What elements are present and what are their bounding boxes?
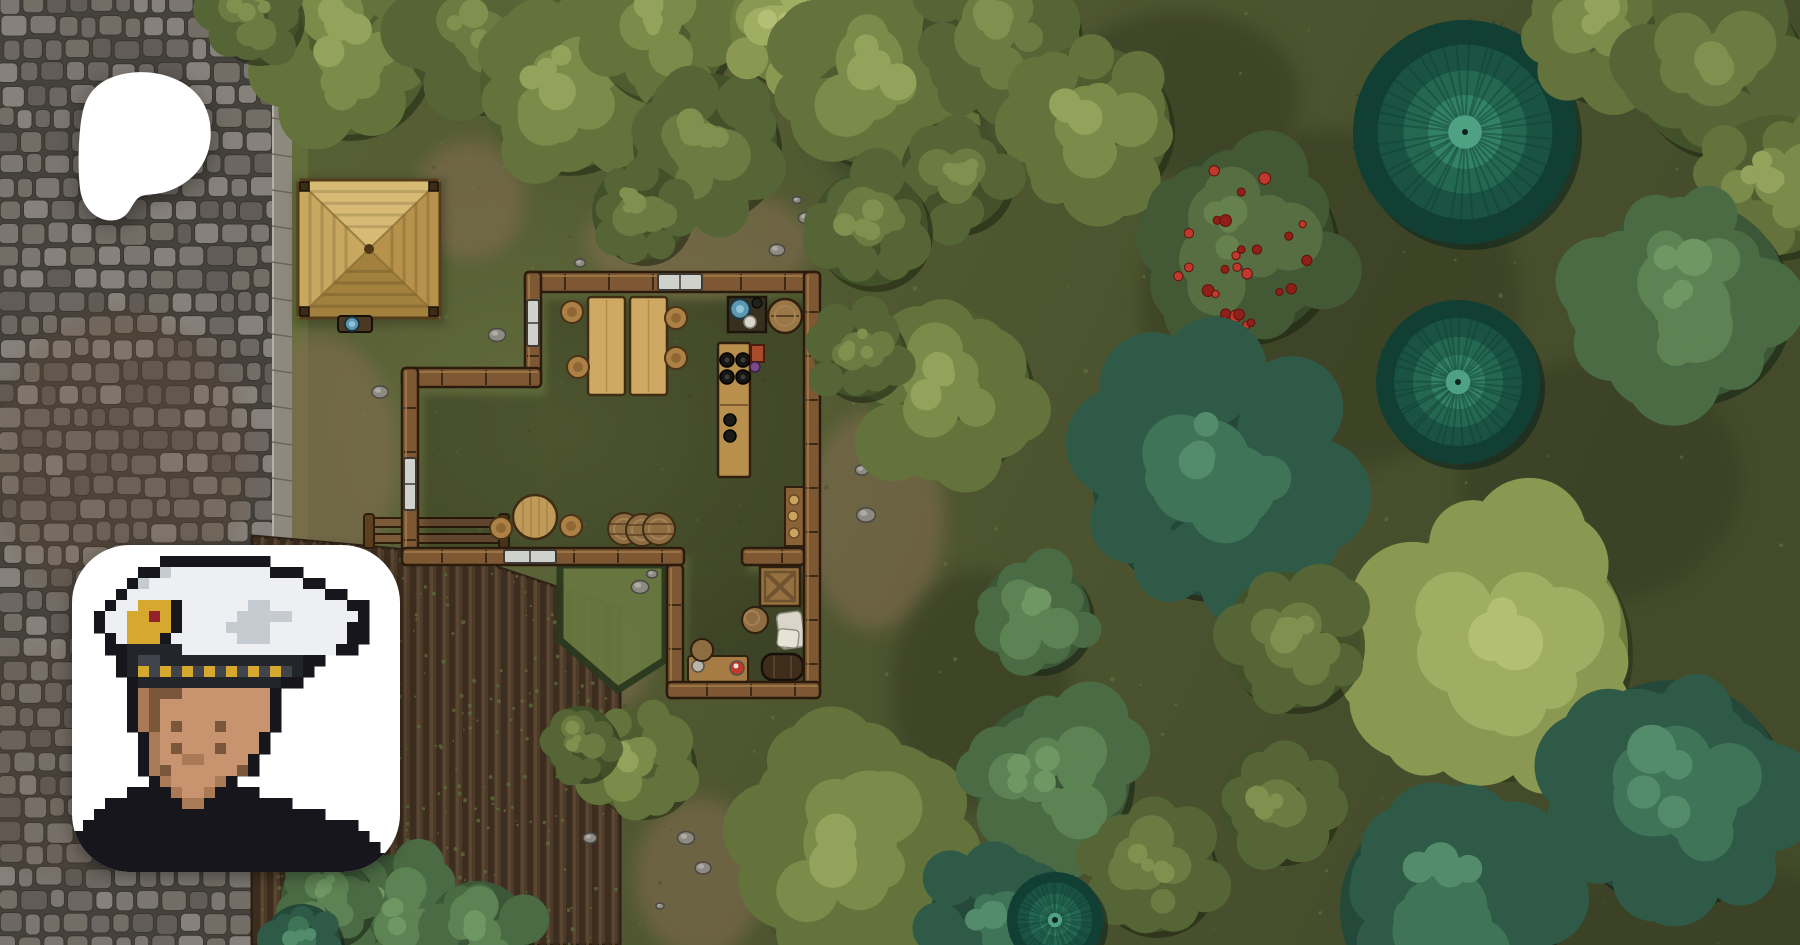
cobblestone	[186, 62, 210, 81]
creator-avatar[interactable]	[72, 545, 403, 876]
avatar-pixel	[138, 710, 150, 722]
cobblestone	[47, 269, 72, 288]
crop-sprout	[525, 669, 528, 672]
avatar-pixel	[105, 820, 117, 832]
red-berry	[1237, 188, 1245, 196]
avatar-pixel	[160, 721, 172, 733]
avatar-pixel	[215, 853, 227, 865]
canopy-highlight	[857, 328, 868, 339]
avatar-pixel	[237, 710, 249, 722]
avatar-pixel	[259, 622, 271, 634]
cobblestone	[67, 936, 88, 945]
crop-sprout	[525, 737, 529, 741]
avatar-pixel	[226, 765, 238, 777]
avatar-pixel	[149, 688, 161, 700]
avatar-pixel	[303, 589, 315, 601]
avatar-pixel	[248, 611, 260, 623]
avatar-pixel	[281, 820, 293, 832]
avatar-pixel	[226, 589, 238, 601]
canopy-highlight	[1423, 842, 1459, 878]
avatar-pixel	[182, 622, 194, 634]
avatar-pixel	[314, 644, 326, 656]
ridge	[534, 520, 537, 945]
cobblestone	[0, 340, 25, 359]
crop-sprout	[472, 679, 476, 683]
avatar-pixel	[226, 611, 238, 623]
avatar-pixel	[270, 721, 282, 733]
cobblestone	[129, 293, 145, 314]
cobblestone	[150, 270, 173, 289]
cobblestone	[23, 0, 44, 13]
cobblestone	[236, 247, 257, 267]
avatar-pixel	[347, 820, 359, 832]
canopy-highlight	[868, 50, 891, 73]
avatar-pixel	[215, 743, 227, 755]
grass-speck	[1308, 29, 1310, 31]
plate	[744, 316, 756, 328]
grass-speck	[1067, 669, 1071, 673]
avatar-pixel	[248, 787, 260, 799]
cobblestone	[215, 85, 235, 104]
cobblestone	[25, 914, 40, 935]
avatar-pixel	[270, 666, 282, 678]
avatar-pixel	[226, 831, 238, 843]
avatar-pixel	[149, 666, 161, 678]
grass-speck	[939, 671, 941, 673]
avatar-pixel	[336, 600, 348, 612]
grass-speck	[1703, 655, 1707, 659]
crop-sprout	[510, 718, 513, 721]
avatar-pixel	[149, 842, 161, 854]
avatar-pixel	[336, 589, 348, 601]
avatar-pixel	[83, 820, 95, 832]
grass-speck	[1436, 247, 1438, 249]
avatar-pixel	[215, 611, 227, 623]
avatar-pixel	[336, 622, 348, 634]
avatar-pixel	[138, 655, 150, 667]
grass-speck	[472, 185, 475, 188]
avatar-pixel	[204, 633, 216, 645]
cobblestone	[23, 200, 48, 219]
avatar-pixel	[127, 721, 139, 733]
avatar-pixel	[248, 666, 260, 678]
canopy-cluster	[1081, 134, 1117, 170]
rock-highlight	[681, 834, 688, 839]
avatar-pixel	[292, 809, 304, 821]
avatar-pixel	[215, 754, 227, 766]
cobblestone	[229, 891, 253, 910]
avatar-pixel	[182, 688, 194, 700]
crop-sprout	[521, 699, 525, 703]
canopy-lobe	[928, 202, 971, 245]
avatar-pixel	[94, 831, 106, 843]
avatar-pixel	[325, 633, 337, 645]
avatar-pixel	[215, 710, 227, 722]
avatar-pixel	[160, 699, 172, 711]
red-berry	[1286, 284, 1296, 294]
crop-sprout	[461, 852, 465, 856]
avatar-pixel	[171, 754, 183, 766]
patreon-cover-banner	[0, 0, 1800, 945]
canopy-highlight	[1653, 245, 1678, 270]
cobblestone	[206, 271, 229, 292]
fir-crown-center	[1052, 917, 1058, 923]
avatar-pixel	[171, 677, 183, 689]
crop-sprout	[496, 807, 499, 810]
avatar-pixel	[259, 677, 271, 689]
grass-speck	[1554, 437, 1556, 439]
avatar-pixel	[182, 666, 194, 678]
avatar-pixel	[347, 853, 359, 865]
crop-sprout	[533, 619, 535, 621]
cobblestone	[132, 914, 153, 933]
avatar-pixel	[127, 853, 139, 865]
avatar-pixel	[259, 589, 271, 601]
cobblestone	[3, 613, 22, 631]
avatar-pixel	[226, 732, 238, 744]
cobblestone	[1, 315, 18, 335]
red-berry	[1252, 245, 1261, 254]
crop-sprout	[492, 802, 495, 805]
cobblestone	[151, 0, 165, 13]
avatar-pixel	[226, 787, 238, 799]
grass-speck	[1514, 262, 1516, 264]
avatar-pixel	[193, 743, 205, 755]
cobblestone	[0, 155, 23, 173]
red-berry	[1212, 290, 1219, 297]
flask-glint	[734, 664, 739, 669]
cobblestone	[45, 155, 70, 173]
avatar-pixel	[303, 809, 315, 821]
roof-finial	[364, 244, 374, 254]
grass-speck	[502, 165, 506, 169]
canopy-highlight	[1658, 795, 1691, 828]
crop-sprout	[453, 847, 457, 851]
avatar-pixel	[237, 721, 249, 733]
rock-highlight	[577, 260, 581, 263]
grass-speck	[1601, 899, 1605, 903]
cobblestone	[96, 891, 113, 909]
avatar-pixel	[237, 556, 249, 568]
avatar-pixel	[259, 721, 271, 733]
cobblestone	[144, 17, 164, 36]
avatar-pixel	[193, 787, 205, 799]
crop-sprout	[503, 809, 506, 812]
grass-speck	[432, 165, 436, 169]
avatar-pixel	[193, 798, 205, 810]
avatar-pixel	[292, 842, 304, 854]
red-berry	[1184, 263, 1193, 272]
cobblestone	[45, 40, 62, 61]
grass-speck	[1526, 4, 1529, 7]
avatar-pixel	[105, 644, 117, 656]
avatar-pixel	[248, 710, 260, 722]
avatar-pixel	[215, 809, 227, 821]
avatar-pixel	[336, 644, 348, 656]
avatar-pixel	[237, 820, 249, 832]
crop-sprout	[452, 708, 455, 711]
avatar-pixel	[215, 600, 227, 612]
avatar-pixel	[116, 853, 128, 865]
canopy-cluster	[1057, 752, 1097, 792]
avatar-pixel	[204, 798, 216, 810]
crop-sprout	[474, 807, 477, 810]
avatar-pixel	[270, 798, 282, 810]
grass-speck	[569, 235, 572, 238]
crop-sprout	[262, 908, 264, 910]
avatar-pixel	[160, 633, 172, 645]
cobblestone	[66, 61, 84, 80]
avatar-pixel	[314, 809, 326, 821]
cobblestone	[0, 201, 20, 219]
avatar-pixel	[281, 809, 293, 821]
cobblestone	[1, 15, 27, 36]
crop-sprout	[255, 543, 257, 545]
canopy-highlight	[1581, 13, 1602, 34]
canopy-highlight	[1035, 746, 1060, 771]
grass-speck	[639, 924, 642, 927]
avatar-pixel	[325, 831, 337, 843]
canopy-cluster	[1014, 22, 1044, 52]
avatar-pixel	[160, 655, 172, 667]
avatar-pixel	[182, 853, 194, 865]
cobblestone	[44, 936, 64, 945]
avatar-pixel	[215, 765, 227, 777]
cobblestone	[247, 362, 261, 380]
avatar-pixel	[171, 600, 183, 612]
crop-sprout	[548, 830, 550, 832]
avatar-pixel	[160, 688, 172, 700]
crop-sprout	[443, 786, 447, 790]
counter-knob	[724, 430, 736, 442]
cobblestone	[0, 913, 22, 932]
grass-speck	[374, 379, 376, 381]
avatar-pixel	[160, 765, 172, 777]
avatar-pixel	[237, 567, 249, 579]
cobblestone	[81, 17, 96, 38]
avatar-pixel	[248, 743, 260, 755]
avatar-pixel	[248, 578, 260, 590]
cobblestone	[220, 293, 234, 312]
avatar-pixel	[226, 633, 238, 645]
cobblestone	[0, 568, 21, 588]
crop-sprout	[457, 784, 461, 788]
avatar-pixel	[237, 831, 249, 843]
avatar-pixel	[281, 611, 293, 623]
grass-speck	[1675, 168, 1678, 171]
crop-sprout	[486, 826, 489, 829]
avatar-pixel	[138, 831, 150, 843]
avatar-pixel	[160, 644, 172, 656]
avatar-pixel	[182, 798, 194, 810]
crop-sprout	[570, 907, 572, 909]
burner-center	[741, 358, 746, 363]
red-berry	[1242, 268, 1253, 279]
avatar-pixel	[237, 754, 249, 766]
cobblestone	[21, 247, 40, 267]
avatar-pixel	[259, 809, 271, 821]
avatar-pixel	[281, 589, 293, 601]
grass-speck	[1072, 401, 1076, 405]
avatar-pixel	[281, 677, 293, 689]
canopy-highlight	[1675, 239, 1712, 276]
avatar-pixel	[138, 787, 150, 799]
crop-sprout	[495, 730, 498, 733]
avatar-pixel	[149, 853, 161, 865]
cobblestone	[30, 15, 56, 33]
cobblestone	[49, 87, 68, 107]
avatar-pixel	[127, 611, 139, 623]
crop-sprout	[277, 886, 281, 890]
avatar-pixel	[259, 820, 271, 832]
grass-speck	[1034, 530, 1036, 532]
avatar-pixel	[127, 831, 139, 843]
avatar-pixel	[336, 842, 348, 854]
avatar-pixel	[138, 765, 150, 777]
avatar-pixel	[347, 842, 359, 854]
grass-speck	[441, 142, 443, 144]
crop-sprout	[554, 682, 557, 685]
crop-sprout	[561, 819, 564, 822]
avatar-pixel	[204, 567, 216, 579]
avatar-pixel	[347, 644, 359, 656]
furrow	[501, 520, 507, 945]
cobblestone	[222, 131, 243, 149]
avatar-pixel	[270, 809, 282, 821]
rock-highlight	[698, 864, 704, 869]
cobblestone	[51, 200, 75, 219]
avatar-pixel	[204, 677, 216, 689]
crop-sprout	[490, 698, 493, 701]
avatar-pixel	[193, 699, 205, 711]
avatar-pixel	[248, 765, 260, 777]
avatar-pixel	[204, 556, 216, 568]
grass-speck	[1081, 382, 1084, 385]
avatar-pixel	[149, 765, 161, 777]
avatar-pixel	[193, 655, 205, 667]
avatar-pixel	[127, 655, 139, 667]
canopy-highlight	[984, 1, 1014, 31]
cobblestone	[17, 178, 32, 197]
furrow	[462, 520, 468, 945]
crop-sprout	[464, 620, 466, 622]
avatar-pixel	[248, 556, 260, 568]
canopy-cluster	[1444, 898, 1492, 945]
crop-sprout	[534, 657, 537, 660]
avatar-pixel	[193, 578, 205, 590]
avatar-pixel	[138, 677, 150, 689]
avatar-pixel	[204, 721, 216, 733]
avatar-pixel	[292, 853, 304, 865]
burner-center	[741, 375, 746, 380]
avatar-pixel	[303, 820, 315, 832]
avatar-pixel	[259, 611, 271, 623]
avatar-pixel	[303, 600, 315, 612]
avatar-pixel	[358, 622, 370, 634]
avatar-pixel	[127, 798, 139, 810]
avatar-pixel	[149, 578, 161, 590]
crop-sprout	[455, 768, 457, 770]
avatar-pixel	[182, 600, 194, 612]
cobblestone	[116, 937, 131, 945]
dark-keg	[762, 654, 803, 680]
avatar-pixel	[204, 820, 216, 832]
crop-sprout	[547, 939, 550, 942]
avatar-pixel	[292, 820, 304, 832]
cobblestone	[26, 616, 48, 635]
avatar-pixel	[182, 710, 194, 722]
cobblestone	[189, 891, 208, 909]
cobblestone	[238, 291, 252, 311]
cobblestone	[209, 317, 235, 335]
avatar-pixel	[127, 666, 139, 678]
stool-center	[496, 523, 506, 533]
avatar-pixel	[248, 567, 260, 579]
avatar-pixel	[226, 567, 238, 579]
building-shadow	[546, 300, 809, 556]
crop-sprout	[506, 782, 510, 786]
avatar-pixel	[281, 644, 293, 656]
canopy-cluster	[236, 23, 259, 46]
avatar-pixel	[226, 655, 238, 667]
avatar-pixel	[226, 743, 238, 755]
crop-sprout	[464, 879, 466, 881]
cobblestone	[213, 62, 240, 83]
grass-speck	[363, 412, 367, 416]
avatar-pixel	[347, 622, 359, 634]
grass-speck	[1161, 733, 1164, 736]
avatar-pixel	[149, 710, 161, 722]
avatar-pixel	[171, 809, 183, 821]
avatar-pixel	[127, 809, 139, 821]
crop-sprout	[515, 820, 517, 822]
avatar-pixel	[270, 655, 282, 667]
avatar-pixel	[171, 732, 183, 744]
red-berry	[1302, 255, 1312, 265]
cobblestone	[65, 39, 89, 57]
avatar-pixel	[325, 644, 337, 656]
cobblestone	[53, 109, 70, 129]
avatar-pixel	[292, 644, 304, 656]
red-berry	[1259, 173, 1271, 185]
avatar-pixel	[171, 842, 183, 854]
avatar-pixel	[105, 809, 117, 821]
avatar-pixel	[248, 798, 260, 810]
avatar-pixel	[138, 589, 150, 601]
crop-sprout	[551, 613, 554, 616]
grass-speck	[1680, 455, 1683, 458]
canopy-highlight	[1245, 786, 1269, 810]
canopy-highlight	[565, 721, 579, 735]
avatar-pixel	[182, 787, 194, 799]
stool-center	[671, 313, 681, 323]
grass-speck	[824, 485, 829, 490]
avatar-pixel	[237, 699, 249, 711]
cobblestone	[245, 109, 271, 129]
avatar-pixel	[369, 842, 381, 854]
red-berry	[1221, 265, 1229, 273]
red-berry	[1247, 319, 1255, 327]
cobblestone	[0, 132, 18, 152]
avatar-pixel	[215, 831, 227, 843]
avatar-pixel	[303, 655, 315, 667]
avatar-pixel	[138, 688, 150, 700]
avatar-pixel	[248, 820, 260, 832]
burner-center	[725, 358, 730, 363]
crop-sprout	[484, 870, 488, 874]
canopy-cluster	[1696, 743, 1762, 809]
crop-sprout	[535, 689, 539, 693]
